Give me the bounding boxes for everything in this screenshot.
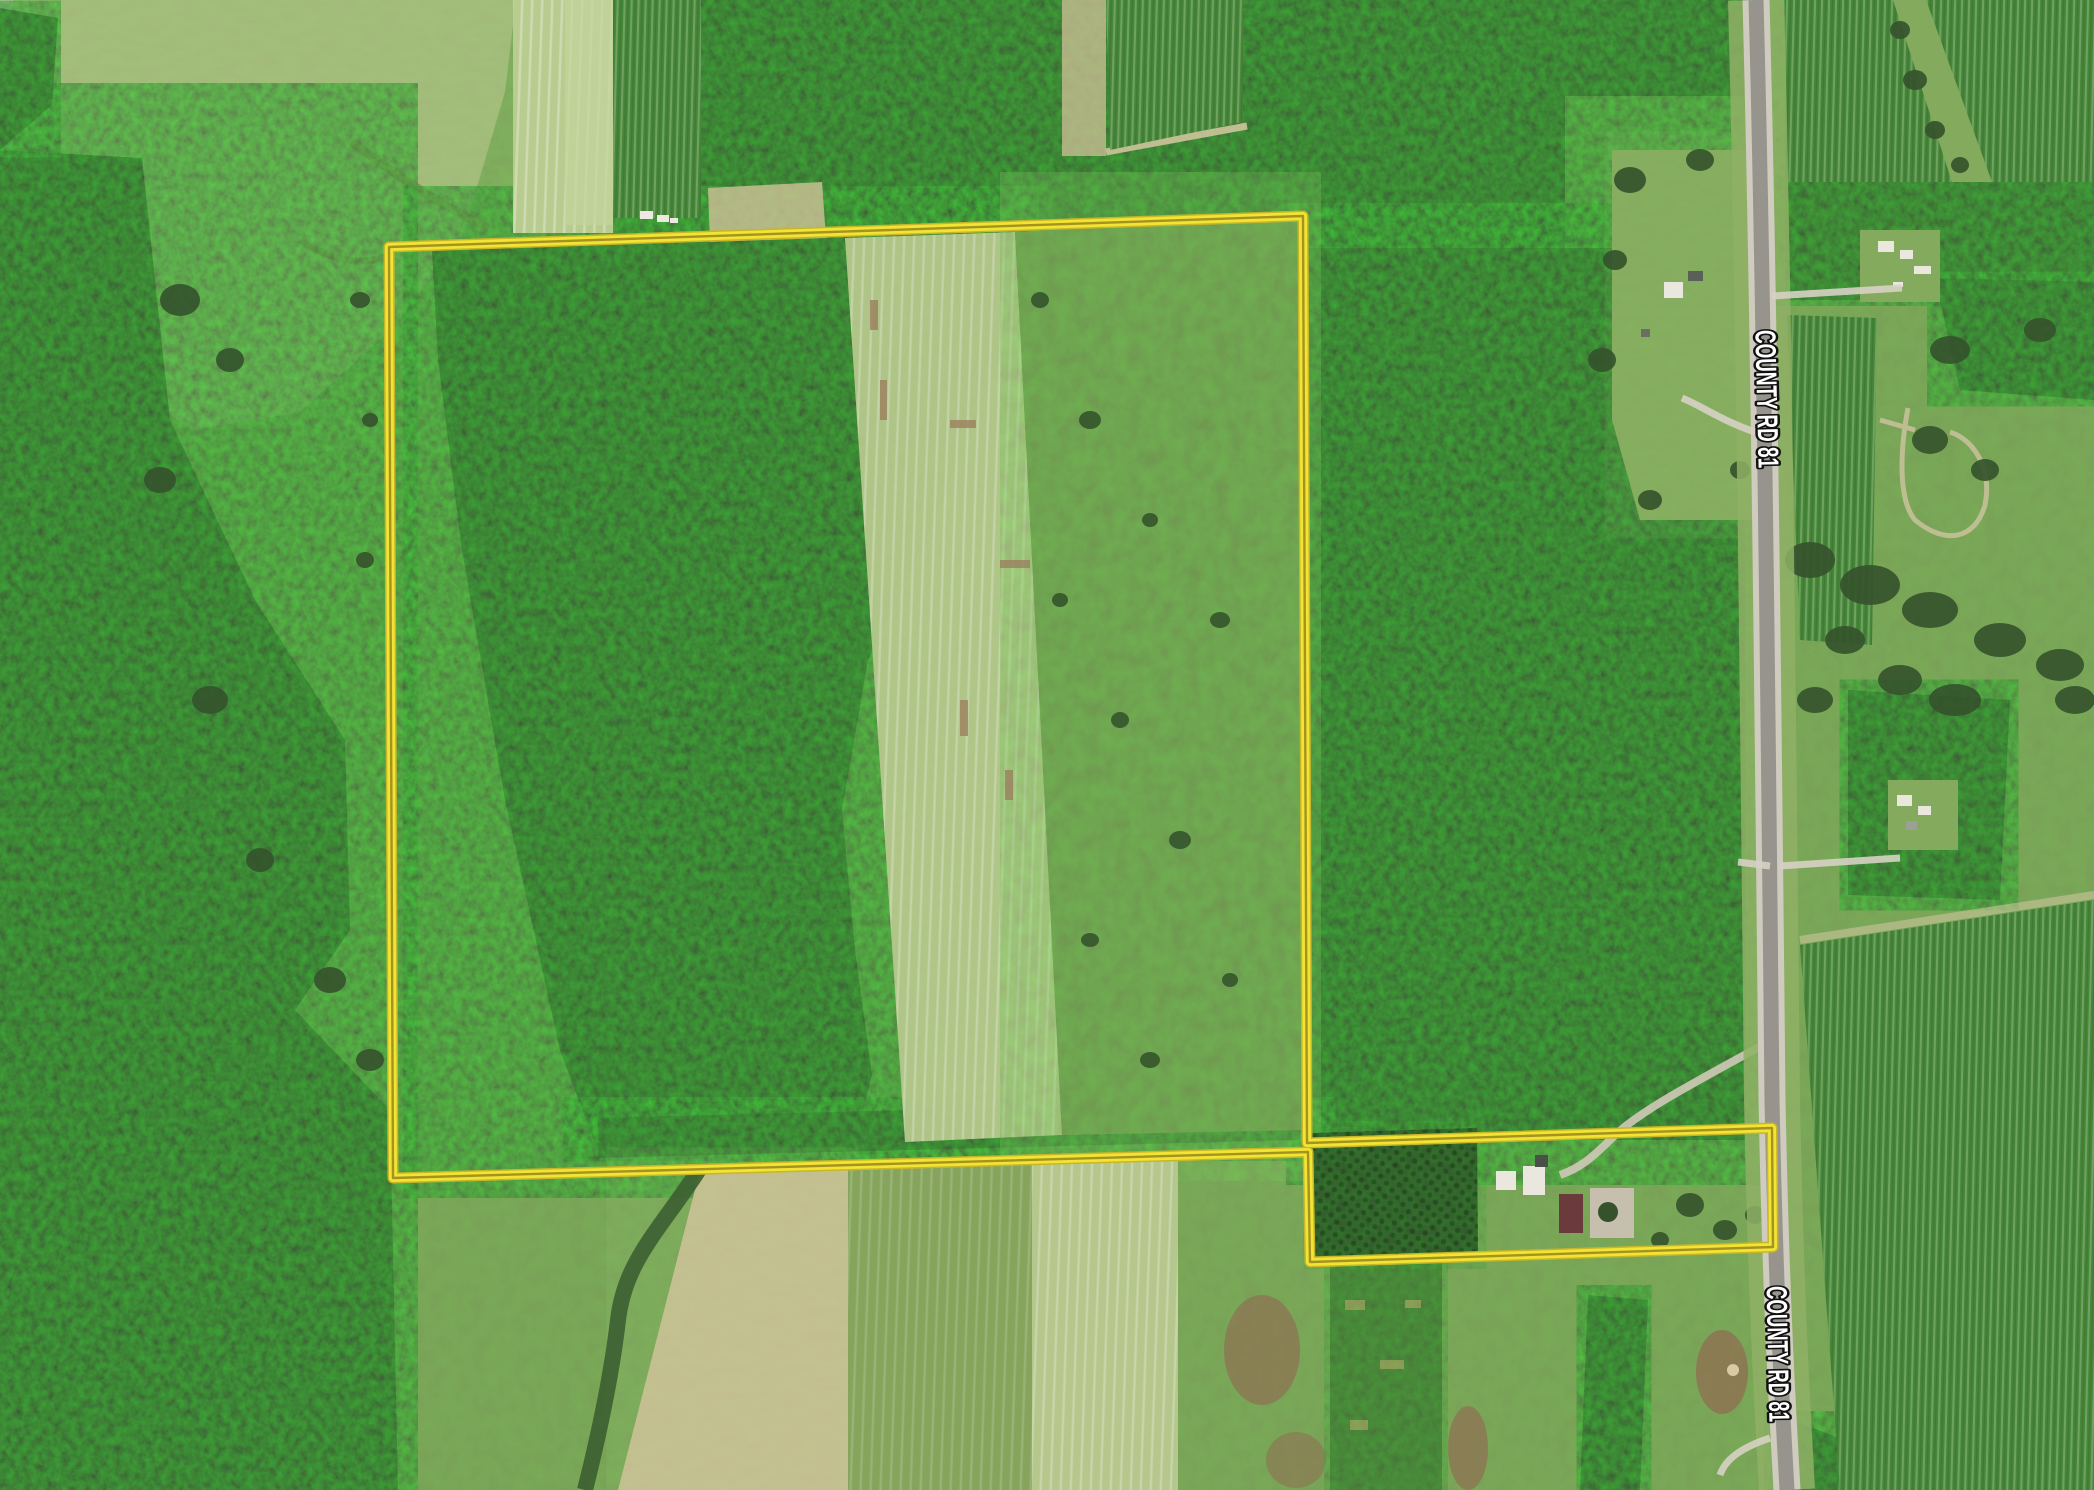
- feedlot: [1696, 1330, 1748, 1414]
- parcel-interior: [845, 218, 1306, 1142]
- aerial-imagery: COUNTY RD 81 COUNTY RD 81: [0, 0, 2094, 1490]
- road-label-north: COUNTY RD 81: [1748, 330, 1783, 469]
- dirt-patch: [1448, 1406, 1488, 1490]
- satellite-map[interactable]: COUNTY RD 81 COUNTY RD 81: [0, 0, 2094, 1490]
- dirt-strip: [1062, 0, 1106, 156]
- dirt-patch: [1224, 1295, 1300, 1405]
- road-label-south: COUNTY RD 81: [1760, 1286, 1795, 1423]
